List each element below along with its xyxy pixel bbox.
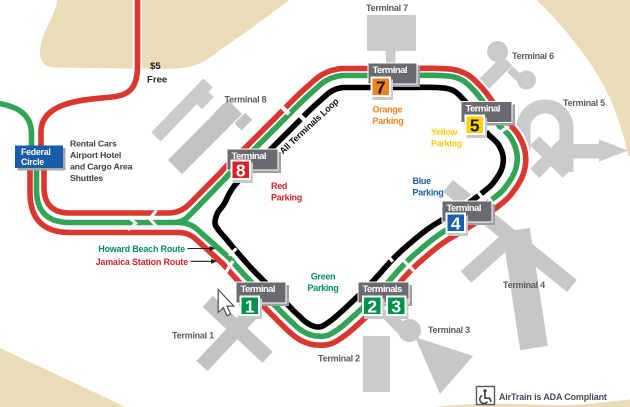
svg-text:Terminal 8: Terminal 8 — [225, 95, 267, 105]
svg-text:Terminal 2: Terminal 2 — [318, 354, 360, 364]
svg-text:Terminal 6: Terminal 6 — [512, 51, 554, 61]
svg-text:Blue: Blue — [413, 176, 432, 186]
svg-text:4: 4 — [451, 214, 461, 234]
svg-text:1: 1 — [245, 297, 255, 317]
svg-text:Terminal 5: Terminal 5 — [563, 98, 605, 108]
svg-text:2: 2 — [367, 297, 377, 317]
svg-text:8: 8 — [236, 161, 246, 181]
svg-text:Terminal 4: Terminal 4 — [503, 280, 545, 290]
svg-text:Circle: Circle — [21, 157, 44, 167]
svg-text:Parking: Parking — [308, 283, 339, 293]
svg-text:Federal: Federal — [21, 147, 51, 157]
svg-text:7: 7 — [376, 78, 386, 98]
svg-text:Howard Beach Route: Howard Beach Route — [98, 244, 185, 254]
svg-text:Free: Free — [147, 75, 167, 86]
svg-text:Parking: Parking — [373, 116, 404, 126]
svg-text:Terminals: Terminals — [363, 284, 402, 295]
svg-text:Red: Red — [271, 181, 287, 191]
svg-text:Terminal: Terminal — [466, 104, 501, 115]
svg-text:Terminal: Terminal — [373, 65, 408, 76]
svg-text:Parking: Parking — [413, 188, 444, 198]
svg-text:Terminal 1: Terminal 1 — [172, 331, 214, 341]
svg-text:Terminal 7: Terminal 7 — [366, 3, 408, 13]
svg-text:Airport Hotel: Airport Hotel — [70, 150, 121, 160]
svg-text:Terminal 3: Terminal 3 — [428, 325, 470, 335]
svg-text:$5: $5 — [150, 61, 161, 72]
svg-text:Jamaica Station Route: Jamaica Station Route — [96, 257, 188, 267]
svg-text:5: 5 — [470, 116, 480, 136]
svg-text:Shuttles: Shuttles — [70, 173, 103, 183]
svg-text:Parking: Parking — [431, 139, 462, 149]
svg-text:AirTrain is ADA Compliant: AirTrain is ADA Compliant — [499, 392, 607, 402]
svg-text:3: 3 — [391, 297, 401, 317]
svg-text:Rental Cars: Rental Cars — [70, 139, 117, 149]
svg-text:Green: Green — [311, 272, 336, 282]
svg-text:Yellow: Yellow — [431, 127, 459, 137]
svg-text:Parking: Parking — [271, 193, 302, 203]
svg-text:and Cargo Area: and Cargo Area — [70, 162, 133, 172]
svg-text:Orange: Orange — [373, 105, 403, 115]
svg-text:Terminal: Terminal — [241, 284, 276, 295]
